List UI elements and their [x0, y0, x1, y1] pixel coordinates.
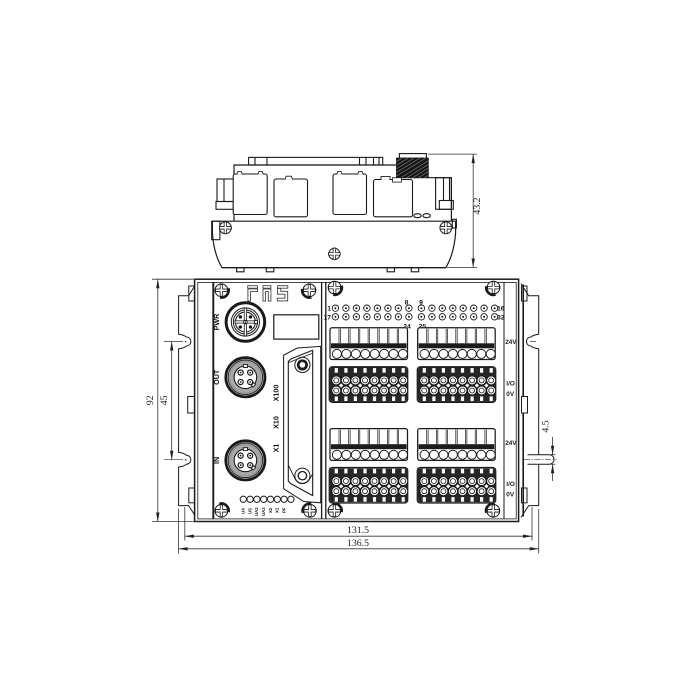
svg-text:UA3: UA3	[261, 507, 266, 516]
svg-text:8: 8	[405, 299, 409, 306]
svg-text:45: 45	[159, 395, 170, 405]
svg-text:17: 17	[323, 314, 331, 321]
svg-text:OUT: OUT	[212, 369, 221, 385]
svg-text:I/O: I/O	[506, 381, 515, 388]
svg-text:X100: X100	[271, 385, 280, 402]
svg-text:24V: 24V	[505, 339, 517, 346]
svg-text:IN: IN	[212, 457, 221, 464]
svg-text:US: US	[247, 508, 252, 514]
svg-text:I/O: I/O	[506, 481, 515, 488]
svg-text:PF: PF	[281, 507, 286, 513]
svg-text:4.5: 4.5	[540, 420, 551, 432]
svg-text:X1: X1	[275, 507, 280, 513]
svg-text:X1: X1	[271, 444, 280, 453]
svg-text:X2: X2	[268, 507, 273, 513]
svg-text:136.5: 136.5	[347, 538, 369, 549]
svg-text:UA: UA	[241, 508, 246, 514]
svg-text:43.2: 43.2	[472, 197, 483, 214]
svg-text:32: 32	[497, 314, 505, 321]
svg-text:0V: 0V	[506, 491, 515, 498]
svg-text:0V: 0V	[506, 391, 515, 398]
svg-text:131.5: 131.5	[347, 525, 369, 536]
svg-text:PWR: PWR	[212, 313, 221, 331]
svg-text:UA2: UA2	[254, 507, 259, 516]
svg-text:1: 1	[327, 306, 331, 313]
svg-text:92: 92	[145, 395, 156, 405]
svg-text:X10: X10	[271, 416, 280, 429]
svg-text:16: 16	[497, 306, 505, 313]
svg-text:24V: 24V	[505, 440, 517, 447]
svg-text:9: 9	[419, 299, 423, 306]
